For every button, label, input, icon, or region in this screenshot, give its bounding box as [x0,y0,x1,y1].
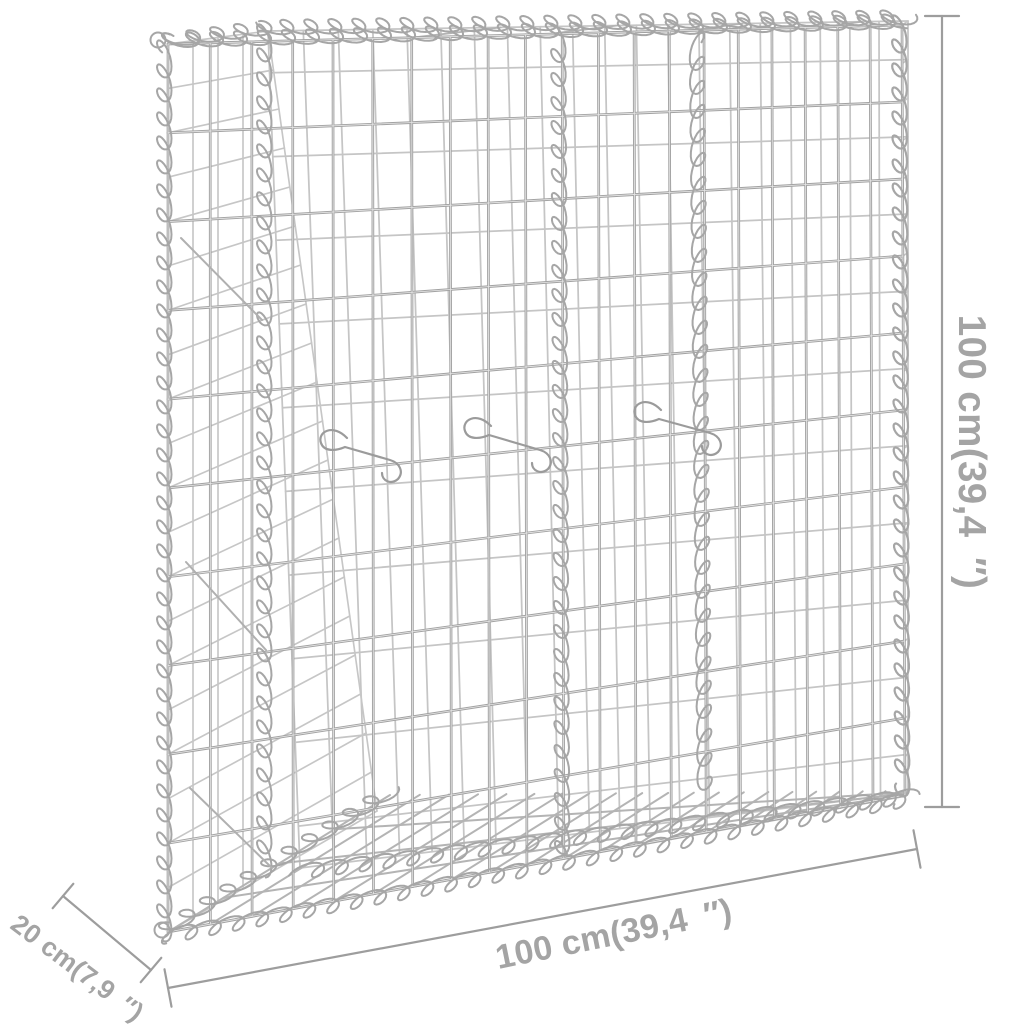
svg-text:20 cm(7,9 ″): 20 cm(7,9 ″) [5,908,149,1024]
svg-text:100 cm(39,4 ″): 100 cm(39,4 ″) [950,315,993,589]
